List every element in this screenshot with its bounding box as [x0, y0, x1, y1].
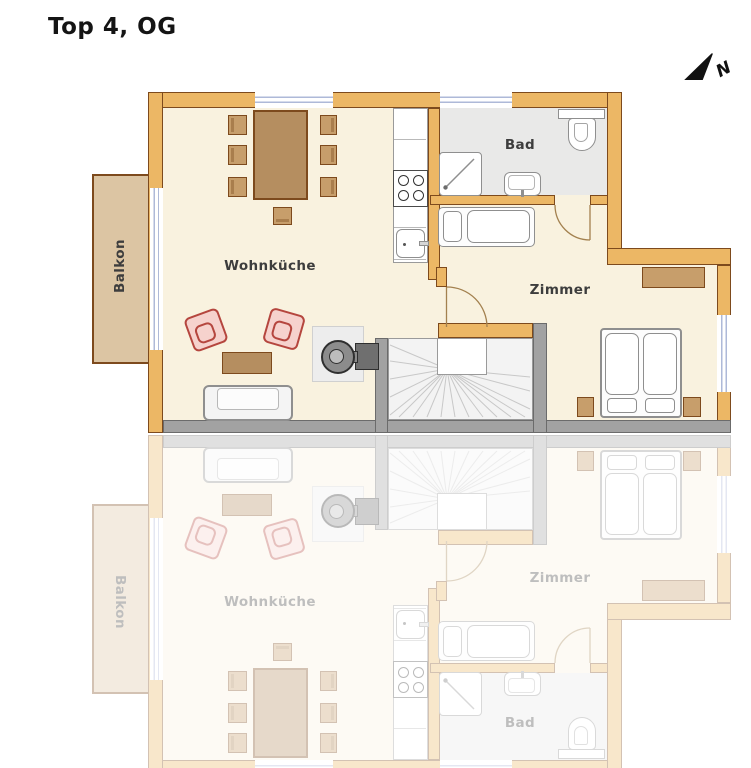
- double-bed: [600, 450, 682, 540]
- window-zimmer: [717, 476, 731, 553]
- bad-room-label: Bad: [490, 715, 550, 731]
- burner: [398, 682, 409, 693]
- double-bed-pillow: [645, 455, 675, 470]
- single-bed-pillow: [443, 626, 462, 657]
- wood-stove: [321, 494, 355, 528]
- stair-treads: [389, 450, 531, 529]
- toilet-bowl: [568, 717, 596, 750]
- dining-chair: [320, 703, 337, 723]
- sofa: [203, 447, 293, 483]
- window-balcony-door: [150, 518, 163, 680]
- stair-wall-left: [375, 435, 388, 530]
- bad-room-label: Bad: [490, 137, 550, 153]
- shower-drain-line: [440, 674, 480, 715]
- dining-chair: [228, 733, 247, 753]
- nightstand: [577, 451, 594, 471]
- bad-floor: [440, 673, 607, 760]
- stair-wall-right: [533, 435, 547, 545]
- wohnkueche-floor: [163, 448, 717, 760]
- window-top-living: [255, 760, 333, 768]
- shower: [439, 672, 482, 716]
- sofa-seat: [217, 458, 279, 480]
- cooktop: [393, 661, 428, 698]
- toilet-tank: [558, 749, 605, 759]
- coffee-table: [222, 494, 272, 516]
- wall-bad-bottom: [430, 663, 555, 673]
- double-bed-mattress: [643, 473, 677, 535]
- wall-zimmer-top: [607, 603, 731, 620]
- wall-bad-bottom-right: [590, 663, 622, 673]
- double-bed-pillow: [607, 455, 637, 470]
- toilet-bowl-inner: [574, 726, 588, 745]
- wohnkueche-room-label: Wohnküche: [210, 258, 330, 274]
- kitchen-counter: [393, 605, 428, 760]
- wardrobe: [642, 580, 705, 601]
- zimmer-room-label: Zimmer: [515, 282, 605, 298]
- counter-divider: [394, 640, 426, 641]
- armchair-seat: [270, 525, 294, 549]
- wohnkueche-room-label: Wohnküche: [210, 594, 330, 610]
- staircase: [388, 448, 533, 530]
- armchair-seat: [193, 523, 217, 547]
- dining-table: [253, 668, 308, 758]
- wall-above-stairs: [438, 530, 533, 545]
- single-bed-mattress: [467, 625, 530, 658]
- dining-chair: [320, 733, 337, 753]
- zimmer-room-label: Zimmer: [515, 570, 605, 586]
- wall-top: [148, 760, 622, 768]
- floor-plan: Wohnküche Bad Zimmer Balkon: [0, 50, 751, 434]
- outside-mask: [622, 620, 751, 768]
- kitchen-sink: [396, 610, 425, 639]
- double-bed-mattress: [605, 473, 639, 535]
- armchair: [183, 515, 229, 561]
- washbasin: [504, 672, 541, 696]
- stove-door: [329, 504, 344, 519]
- wall-right: [717, 447, 731, 603]
- stove-flue: [355, 498, 379, 525]
- floor-plan-mirror: Wohnküche Bad Zimmer Balkon: [0, 434, 751, 768]
- stove-hearth: [312, 486, 364, 542]
- wall-left: [148, 435, 163, 768]
- burner: [398, 667, 409, 678]
- balcony: [92, 504, 150, 694]
- dining-chair: [228, 671, 247, 691]
- dining-chair: [273, 643, 292, 661]
- stair-landing: [437, 493, 487, 530]
- dining-chair: [228, 703, 247, 723]
- stove-pipe: [348, 505, 358, 517]
- burner: [413, 667, 424, 678]
- counter-divider: [394, 608, 426, 609]
- wall-kitchen-bath-divider: [428, 588, 440, 760]
- wall-divider-stub: [436, 581, 447, 601]
- dining-chair: [320, 671, 337, 691]
- counter-divider: [394, 728, 426, 729]
- balkon-room-label: Balkon: [95, 552, 145, 652]
- washbasin-bowl: [508, 678, 535, 693]
- floor-plan-reflection: Wohnküche Bad Zimmer Balkon: [0, 434, 751, 768]
- sink-drain: [403, 622, 406, 625]
- party-wall-bottom: [163, 435, 731, 448]
- washbasin-tap: [521, 671, 524, 678]
- door-swings: [0, 434, 751, 768]
- balkon-room-label: Balkon: [95, 216, 145, 316]
- page-title: Top 4, OG: [48, 14, 177, 40]
- single-bed: [438, 621, 535, 661]
- armchair: [262, 517, 307, 562]
- wall-bad-right: [607, 603, 622, 768]
- sink-faucet: [419, 622, 429, 627]
- nightstand: [683, 451, 701, 471]
- window-top-bath: [440, 760, 512, 768]
- burner: [413, 682, 424, 693]
